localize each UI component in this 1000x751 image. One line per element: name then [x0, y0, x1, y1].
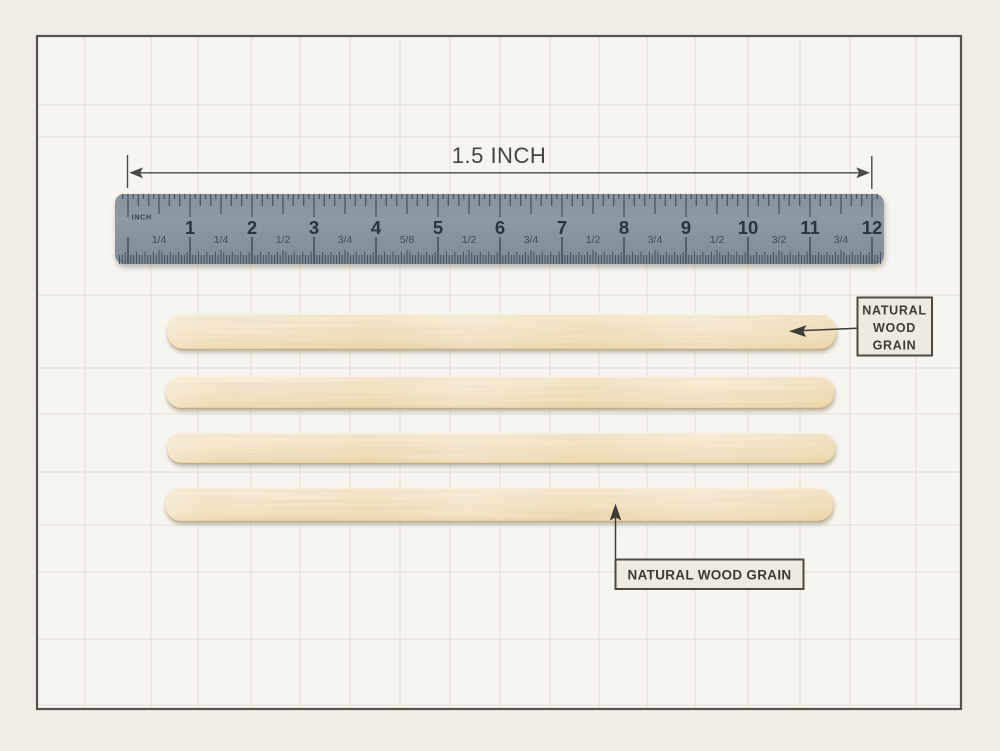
svg-text:6: 6 — [495, 217, 505, 238]
svg-text:7: 7 — [557, 217, 567, 238]
svg-text:3/2: 3/2 — [772, 234, 787, 246]
svg-text:3/4: 3/4 — [834, 234, 849, 246]
svg-text:1/2: 1/2 — [462, 234, 477, 246]
svg-text:3/4: 3/4 — [524, 234, 539, 246]
svg-text:2: 2 — [247, 217, 257, 238]
svg-text:3: 3 — [309, 217, 319, 238]
svg-text:1.5 INCH: 1.5 INCH — [452, 143, 546, 168]
svg-text:4: 4 — [371, 217, 382, 238]
svg-text:1/4: 1/4 — [214, 234, 229, 246]
svg-text:NATURAL WOOD GRAIN: NATURAL WOOD GRAIN — [628, 568, 792, 583]
svg-text:11: 11 — [800, 217, 820, 238]
svg-text:WOOD: WOOD — [873, 321, 916, 335]
svg-text:NATURAL: NATURAL — [862, 304, 926, 318]
svg-text:1/2: 1/2 — [276, 234, 291, 246]
svg-text:1/2: 1/2 — [710, 234, 725, 246]
svg-text:GRAIN: GRAIN — [873, 339, 917, 353]
svg-text:1/2: 1/2 — [586, 234, 601, 246]
svg-text:10: 10 — [738, 217, 759, 238]
svg-text:8: 8 — [619, 217, 629, 238]
svg-text:9: 9 — [681, 217, 691, 238]
svg-text:5: 5 — [433, 217, 443, 238]
svg-text:12: 12 — [862, 217, 883, 238]
svg-text:1/4: 1/4 — [152, 234, 167, 246]
svg-text:1: 1 — [185, 217, 195, 238]
svg-text:INCH: INCH — [132, 213, 152, 222]
svg-text:3/4: 3/4 — [338, 234, 353, 246]
svg-text:3/4: 3/4 — [648, 234, 663, 246]
svg-text:5/8: 5/8 — [400, 234, 415, 246]
